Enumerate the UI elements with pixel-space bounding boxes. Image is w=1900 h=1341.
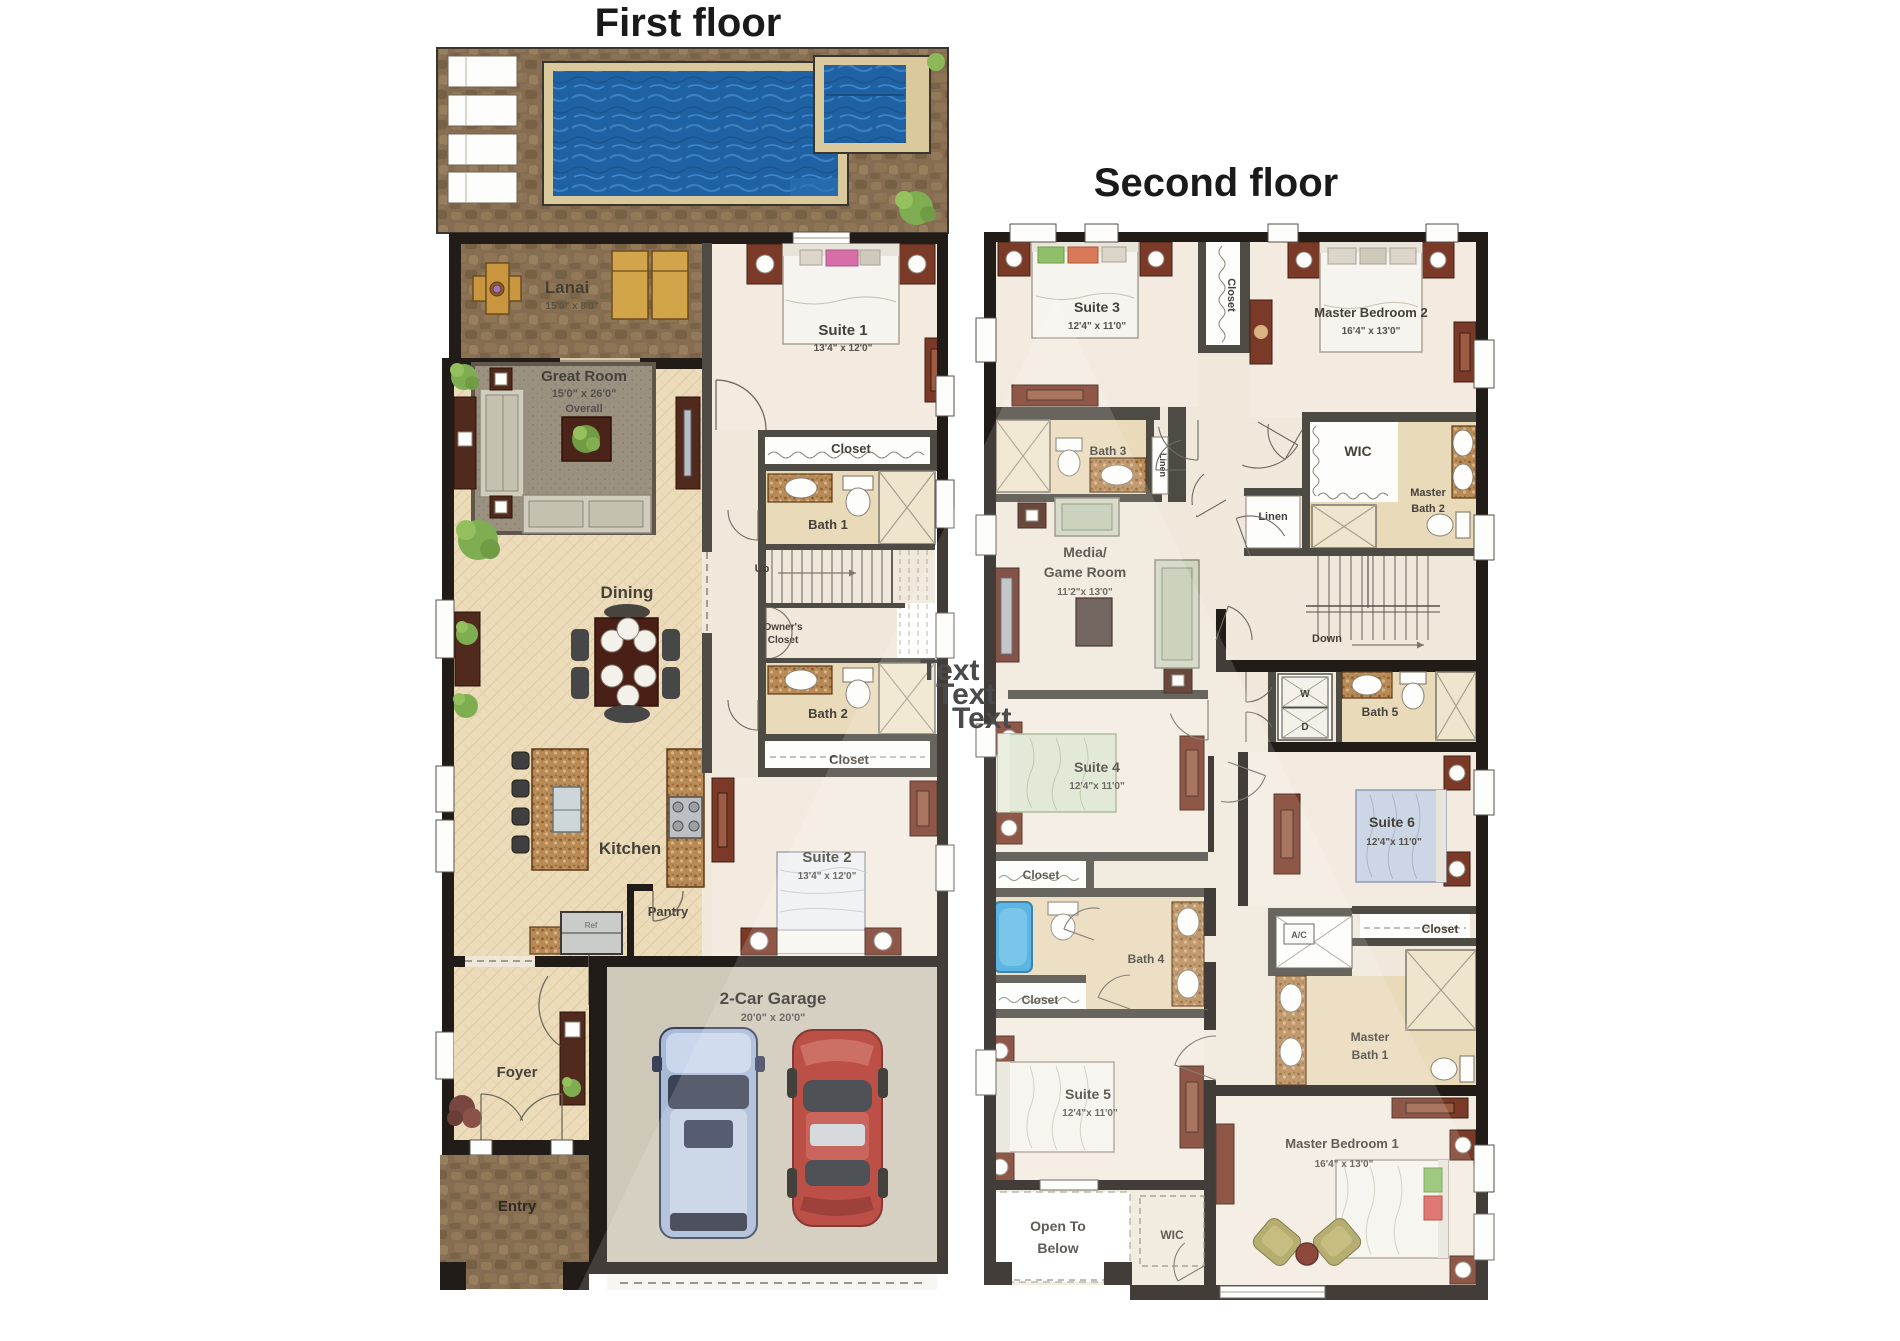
svg-text:15'0" x 8'0": 15'0" x 8'0" [545, 301, 598, 312]
svg-text:Closet: Closet [1422, 922, 1459, 936]
svg-text:Closet: Closet [831, 441, 871, 456]
svg-text:Master Bedroom 2: Master Bedroom 2 [1314, 305, 1427, 320]
svg-text:15'0" x 26'0": 15'0" x 26'0" [552, 388, 617, 400]
svg-text:Suite 1: Suite 1 [818, 322, 867, 339]
svg-text:D: D [1301, 722, 1308, 733]
svg-text:Closet: Closet [1225, 278, 1237, 312]
svg-text:Owner's: Owner's [763, 622, 802, 633]
svg-text:16'4" x 13'0": 16'4" x 13'0" [1342, 326, 1401, 337]
svg-text:Bath 2: Bath 2 [1411, 503, 1445, 515]
svg-text:Linen: Linen [1258, 511, 1288, 523]
svg-text:Up: Up [755, 563, 770, 575]
svg-text:Bath 2: Bath 2 [808, 706, 848, 721]
svg-text:Entry: Entry [498, 1198, 537, 1215]
svg-text:Ref: Ref [585, 921, 598, 930]
svg-text:12'4"x 11'0": 12'4"x 11'0" [1366, 837, 1422, 848]
svg-text:Overall: Overall [565, 403, 602, 415]
svg-text:Text: Text [952, 702, 1011, 735]
svg-text:Down: Down [1312, 633, 1342, 645]
svg-text:Lanai: Lanai [545, 278, 589, 297]
svg-text:Closet: Closet [768, 635, 799, 646]
svg-text:Bath 5: Bath 5 [1362, 705, 1399, 719]
svg-text:12'4" x 11'0": 12'4" x 11'0" [1068, 321, 1126, 332]
svg-text:Suite 6: Suite 6 [1369, 814, 1415, 830]
svg-text:WIC: WIC [1344, 443, 1371, 459]
svg-text:Second floor: Second floor [1094, 161, 1338, 205]
svg-text:W: W [1300, 689, 1310, 700]
svg-text:Dining: Dining [601, 583, 654, 602]
svg-text:Master: Master [1410, 487, 1446, 499]
svg-text:Bath 1: Bath 1 [808, 517, 848, 532]
svg-text:Suite 3: Suite 3 [1074, 299, 1120, 315]
svg-text:Foyer: Foyer [497, 1064, 538, 1081]
svg-text:First floor: First floor [595, 1, 782, 45]
svg-text:Great Room: Great Room [541, 368, 627, 385]
svg-text:Kitchen: Kitchen [599, 839, 661, 858]
svg-text:13'4" x 12'0": 13'4" x 12'0" [814, 343, 873, 354]
